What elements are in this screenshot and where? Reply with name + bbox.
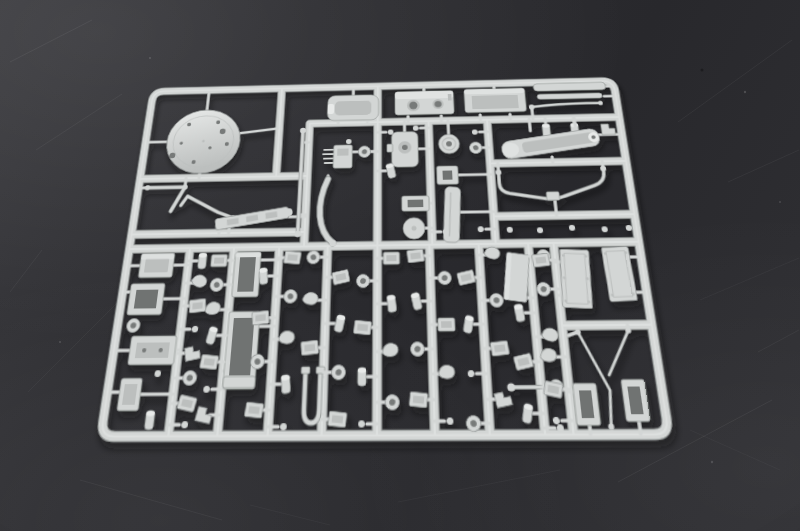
small-part [211, 255, 228, 267]
small-part [302, 292, 318, 305]
linkage-parts [136, 176, 307, 235]
small-part [334, 314, 346, 333]
small-part [306, 250, 321, 266]
small-part [438, 318, 455, 331]
small-part [411, 292, 423, 310]
small-part [384, 393, 401, 411]
small-part [189, 299, 205, 313]
small-part [280, 423, 287, 430]
small-part [522, 403, 533, 424]
small-part [437, 364, 455, 379]
small-part [203, 386, 210, 393]
small-part [354, 320, 372, 335]
sprue [95, 77, 675, 442]
small-part [205, 326, 218, 345]
small-part [489, 293, 504, 307]
anti-roll-bar-part [495, 161, 613, 216]
small-part [407, 249, 425, 263]
small-part [383, 252, 399, 264]
small-part [490, 341, 509, 356]
small-part [281, 375, 290, 394]
small-part [358, 146, 372, 158]
small-part [181, 421, 188, 428]
small-part [542, 327, 558, 342]
small-part [200, 354, 219, 369]
small-part [358, 420, 365, 427]
small-part [177, 395, 197, 413]
turret-ring-disc-part [144, 92, 280, 179]
middle-fittings [294, 120, 496, 247]
small-part [284, 251, 302, 264]
small-part [204, 300, 221, 316]
small-part [191, 326, 198, 333]
small-part [244, 402, 263, 418]
small-part [409, 341, 425, 358]
small-part [387, 295, 397, 313]
small-part [252, 310, 269, 325]
small-part [438, 271, 452, 286]
small-part [472, 129, 478, 134]
small-part [328, 411, 347, 427]
small-part [457, 270, 476, 286]
small-part [259, 268, 268, 285]
small-part [332, 269, 350, 285]
photo-stage [0, 0, 800, 531]
small-part [478, 226, 484, 232]
small-part [463, 315, 474, 334]
small-part [195, 406, 213, 423]
small-part [185, 345, 201, 361]
small-part [381, 342, 399, 359]
small-part [210, 277, 223, 292]
small-part [331, 364, 347, 380]
small-part [182, 370, 197, 385]
small-part [198, 253, 208, 269]
small-part [532, 253, 551, 267]
small-part [514, 304, 525, 322]
small-part [552, 416, 561, 425]
hull-plate-parts [500, 246, 644, 309]
small-part [536, 281, 551, 297]
small-part [278, 330, 294, 345]
small-part [355, 273, 371, 289]
small-part [413, 126, 419, 131]
small-part [494, 390, 513, 407]
small-part [513, 353, 533, 370]
small-part [468, 370, 475, 378]
small-part [358, 368, 367, 386]
small-part [409, 392, 428, 408]
small-part [284, 289, 298, 304]
small-part [190, 274, 208, 289]
small-part [446, 417, 454, 425]
small-part [468, 141, 483, 155]
small-part [301, 340, 319, 355]
